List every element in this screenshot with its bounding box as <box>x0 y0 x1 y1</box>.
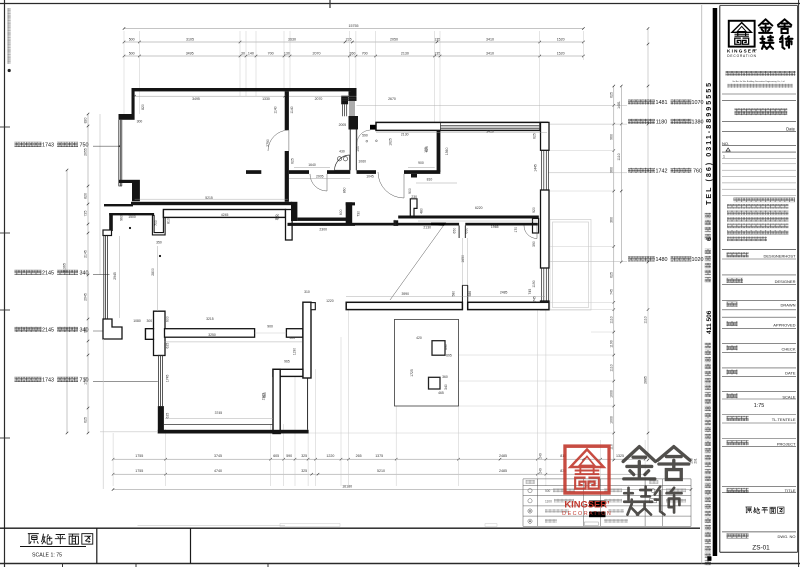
svg-text:SCALE: SCALE <box>782 394 795 399</box>
svg-text:810: 810 <box>427 178 433 182</box>
svg-text:810: 810 <box>166 218 170 224</box>
svg-text:590: 590 <box>286 454 292 458</box>
svg-text:860: 860 <box>343 187 347 193</box>
svg-text:960: 960 <box>120 215 124 221</box>
svg-text:240: 240 <box>539 453 543 459</box>
svg-text:DESIGNER: DESIGNER <box>775 279 796 284</box>
svg-text:1110: 1110 <box>617 153 621 160</box>
svg-text:820: 820 <box>84 193 88 199</box>
svg-text:1755: 1755 <box>135 454 143 458</box>
svg-text:200: 200 <box>275 214 279 220</box>
svg-text:1745: 1745 <box>166 375 170 383</box>
svg-text:1080: 1080 <box>133 319 141 323</box>
svg-text:600: 600 <box>339 209 343 215</box>
svg-text:1000: 1000 <box>609 416 613 424</box>
svg-text:1180: 1180 <box>656 120 668 126</box>
svg-text:3630: 3630 <box>288 38 296 42</box>
svg-text:3495: 3495 <box>192 97 200 101</box>
svg-text:420: 420 <box>416 336 422 340</box>
svg-text:2130: 2130 <box>423 226 431 230</box>
svg-text:1480: 1480 <box>656 257 668 263</box>
svg-text:3495: 3495 <box>186 52 194 56</box>
svg-text:965: 965 <box>263 392 267 398</box>
svg-text:240: 240 <box>539 468 543 474</box>
svg-text:625: 625 <box>290 158 294 164</box>
svg-text:900: 900 <box>418 161 424 165</box>
svg-text:586: 586 <box>468 291 472 297</box>
svg-text:820: 820 <box>141 104 145 110</box>
svg-text:2800: 2800 <box>151 268 155 276</box>
svg-text:155: 155 <box>424 147 428 153</box>
svg-text:2485: 2485 <box>499 469 507 473</box>
svg-text:1140: 1140 <box>290 106 294 113</box>
svg-text:3105: 3105 <box>186 38 194 42</box>
svg-text:695: 695 <box>446 354 452 358</box>
svg-text:1140: 1140 <box>273 106 277 113</box>
svg-text:480: 480 <box>420 208 424 214</box>
svg-text:300: 300 <box>146 319 152 323</box>
svg-text:3745: 3745 <box>214 454 222 458</box>
svg-text:500: 500 <box>129 38 135 42</box>
svg-text:260: 260 <box>349 52 355 56</box>
svg-text:430: 430 <box>339 150 345 154</box>
svg-text:3215: 3215 <box>206 317 214 321</box>
svg-text:745: 745 <box>528 289 532 295</box>
svg-text:5210: 5210 <box>377 469 385 473</box>
svg-text:16180: 16180 <box>342 484 352 488</box>
svg-text:1110: 1110 <box>609 316 613 323</box>
svg-text:500: 500 <box>545 489 551 493</box>
svg-text:CHECK: CHECK <box>781 347 795 352</box>
svg-text:2945: 2945 <box>113 272 117 280</box>
svg-text:1481: 1481 <box>656 100 668 106</box>
svg-text:1725: 1725 <box>410 369 414 377</box>
svg-text:1445: 1445 <box>534 164 538 172</box>
svg-text:300: 300 <box>137 120 143 124</box>
svg-text:2300: 2300 <box>319 227 327 231</box>
svg-text:3990: 3990 <box>402 292 410 296</box>
svg-text:690: 690 <box>444 344 448 350</box>
svg-text:D E C O R A T I O N: D E C O R A T I O N <box>562 511 611 517</box>
svg-text:30: 30 <box>241 52 245 56</box>
svg-text:130: 130 <box>284 52 290 56</box>
svg-text:1755: 1755 <box>135 469 143 473</box>
svg-text:KINGSER’: KINGSER’ <box>564 499 609 510</box>
svg-text:1220: 1220 <box>326 454 334 458</box>
svg-text:3410: 3410 <box>486 130 494 134</box>
svg-text:340: 340 <box>80 328 89 334</box>
svg-text:1190: 1190 <box>292 348 296 355</box>
svg-text:1220: 1220 <box>326 299 334 303</box>
svg-text:1742: 1742 <box>656 169 668 175</box>
svg-text:1110: 1110 <box>609 364 613 371</box>
svg-text:D E C O R A T I O N: D E C O R A T I O N <box>727 54 756 58</box>
svg-text:650: 650 <box>452 228 456 234</box>
svg-text:960: 960 <box>609 167 613 173</box>
svg-text:625: 625 <box>609 272 613 278</box>
svg-text:TM: TM <box>754 49 757 51</box>
svg-text:230: 230 <box>411 195 417 199</box>
svg-text:2070: 2070 <box>315 97 323 101</box>
svg-text:APPROVED: APPROVED <box>773 322 795 327</box>
svg-text:310: 310 <box>304 290 310 294</box>
svg-text:1045: 1045 <box>366 175 374 179</box>
svg-text:760: 760 <box>693 169 702 175</box>
svg-text:750: 750 <box>80 143 89 149</box>
svg-text:360: 360 <box>609 217 613 223</box>
svg-text:2670: 2670 <box>388 97 396 101</box>
svg-text:2145: 2145 <box>42 328 54 334</box>
svg-text:170: 170 <box>514 227 518 233</box>
svg-text:1625: 1625 <box>389 138 393 146</box>
svg-text:4245: 4245 <box>221 213 229 217</box>
svg-text:710: 710 <box>80 378 89 384</box>
svg-text:140: 140 <box>248 52 254 56</box>
svg-text:900: 900 <box>408 188 412 194</box>
svg-text:1190: 1190 <box>609 340 613 348</box>
svg-text:TEL (86) 0311-88995555: TEL (86) 0311-88995555 <box>704 81 713 205</box>
svg-text:1000: 1000 <box>609 390 613 398</box>
svg-text:1110: 1110 <box>644 316 648 323</box>
svg-text:235: 235 <box>346 38 352 42</box>
svg-text:965: 965 <box>284 360 290 364</box>
svg-text:2485: 2485 <box>499 454 507 458</box>
svg-text:625: 625 <box>166 413 170 419</box>
svg-text:1100: 1100 <box>545 499 552 503</box>
svg-text:He Bei Jin She Building Decora: He Bei Jin She Building Decoration Engin… <box>733 80 786 83</box>
svg-text:465: 465 <box>438 391 444 395</box>
svg-text:1520: 1520 <box>557 52 565 56</box>
svg-text:411 506: 411 506 <box>706 310 713 334</box>
svg-text:2145: 2145 <box>84 250 88 258</box>
svg-text:15755: 15755 <box>349 24 359 28</box>
svg-text:135: 135 <box>434 52 440 56</box>
svg-text:3250: 3250 <box>208 333 216 337</box>
svg-text:155: 155 <box>356 146 360 152</box>
svg-text:PROJECT: PROJECT <box>777 441 796 446</box>
svg-text:700: 700 <box>268 52 274 56</box>
svg-text:2130: 2130 <box>401 52 409 56</box>
svg-text:1520: 1520 <box>557 38 565 42</box>
svg-text:1:75: 1:75 <box>754 403 765 409</box>
svg-text:5215: 5215 <box>205 196 213 200</box>
svg-text:1743: 1743 <box>42 378 54 384</box>
svg-text:590: 590 <box>362 134 368 138</box>
svg-text:900: 900 <box>267 325 273 329</box>
svg-text:1640: 1640 <box>308 163 316 167</box>
svg-text:580: 580 <box>452 291 456 297</box>
svg-text:2945: 2945 <box>84 293 88 301</box>
svg-text:625: 625 <box>166 343 170 349</box>
svg-text:700: 700 <box>362 52 368 56</box>
svg-text:3745: 3745 <box>215 411 223 415</box>
svg-text:1560: 1560 <box>445 147 449 155</box>
svg-text:2885: 2885 <box>644 376 648 384</box>
svg-text:605: 605 <box>273 454 279 458</box>
svg-text:Date: Date <box>786 127 796 132</box>
svg-text:650: 650 <box>465 228 469 234</box>
svg-text:325: 325 <box>301 469 307 473</box>
svg-text:390: 390 <box>532 241 536 247</box>
svg-text:291: 291 <box>694 458 698 464</box>
svg-text:4740: 4740 <box>214 469 222 473</box>
svg-text:135: 135 <box>434 38 440 42</box>
svg-text:DWG. NO: DWG. NO <box>778 534 796 539</box>
svg-text:500: 500 <box>129 52 135 56</box>
svg-text:1500: 1500 <box>128 215 136 219</box>
svg-text:625: 625 <box>533 133 537 139</box>
svg-text:265: 265 <box>356 454 362 458</box>
svg-text:2070: 2070 <box>313 52 321 56</box>
svg-text:920: 920 <box>532 207 536 213</box>
svg-text:325: 325 <box>301 454 307 458</box>
svg-text:600: 600 <box>166 316 170 322</box>
svg-text:DESIGNERHOST: DESIGNERHOST <box>763 253 796 258</box>
svg-text:745: 745 <box>609 289 613 295</box>
svg-text:360: 360 <box>442 375 448 379</box>
svg-text:NO.: NO. <box>722 141 729 146</box>
svg-text:625: 625 <box>84 417 88 423</box>
svg-text:1650: 1650 <box>461 255 465 263</box>
svg-text:3410: 3410 <box>486 52 494 56</box>
svg-text:1330: 1330 <box>262 97 270 101</box>
svg-text:130: 130 <box>393 220 397 226</box>
svg-text:DATE: DATE <box>785 371 796 376</box>
svg-text:745: 745 <box>533 296 537 302</box>
svg-text:DRAWN: DRAWN <box>781 303 796 308</box>
svg-text:2005: 2005 <box>316 175 324 179</box>
svg-text:2145: 2145 <box>42 271 54 277</box>
svg-text:730: 730 <box>357 211 361 217</box>
svg-text:1743: 1743 <box>42 143 54 149</box>
svg-text:340: 340 <box>444 384 448 390</box>
svg-text:1060: 1060 <box>358 160 366 164</box>
svg-text:700: 700 <box>154 220 158 226</box>
svg-text:ZS-01: ZS-01 <box>752 545 770 552</box>
svg-text:2485: 2485 <box>500 291 508 295</box>
svg-text:1481: 1481 <box>617 101 621 109</box>
svg-text:1325: 1325 <box>616 454 624 458</box>
svg-text:340: 340 <box>80 271 89 277</box>
svg-text:2130: 2130 <box>401 132 409 136</box>
svg-text:TL.TENTELE: TL.TENTELE <box>772 417 796 422</box>
svg-text:3410: 3410 <box>486 38 494 42</box>
svg-text:SCALE 1: 75: SCALE 1: 75 <box>32 553 62 559</box>
svg-text:960: 960 <box>609 134 613 140</box>
svg-text:1: 1 <box>723 154 725 158</box>
svg-text:820: 820 <box>84 118 88 124</box>
svg-text:1375: 1375 <box>375 454 383 458</box>
svg-text:500: 500 <box>289 336 295 340</box>
svg-text:625: 625 <box>609 92 613 98</box>
svg-text:350: 350 <box>156 241 162 245</box>
svg-text:725: 725 <box>84 211 88 217</box>
svg-text:6220: 6220 <box>475 206 483 210</box>
svg-text:1190: 1190 <box>532 280 536 287</box>
svg-text:2055: 2055 <box>84 148 88 156</box>
svg-text:2050: 2050 <box>390 38 398 42</box>
svg-text:1965: 1965 <box>491 225 499 229</box>
svg-text:2790: 2790 <box>266 139 270 147</box>
svg-text:K I N G S E R: K I N G S E R <box>727 48 756 53</box>
svg-text:2005: 2005 <box>339 123 347 127</box>
